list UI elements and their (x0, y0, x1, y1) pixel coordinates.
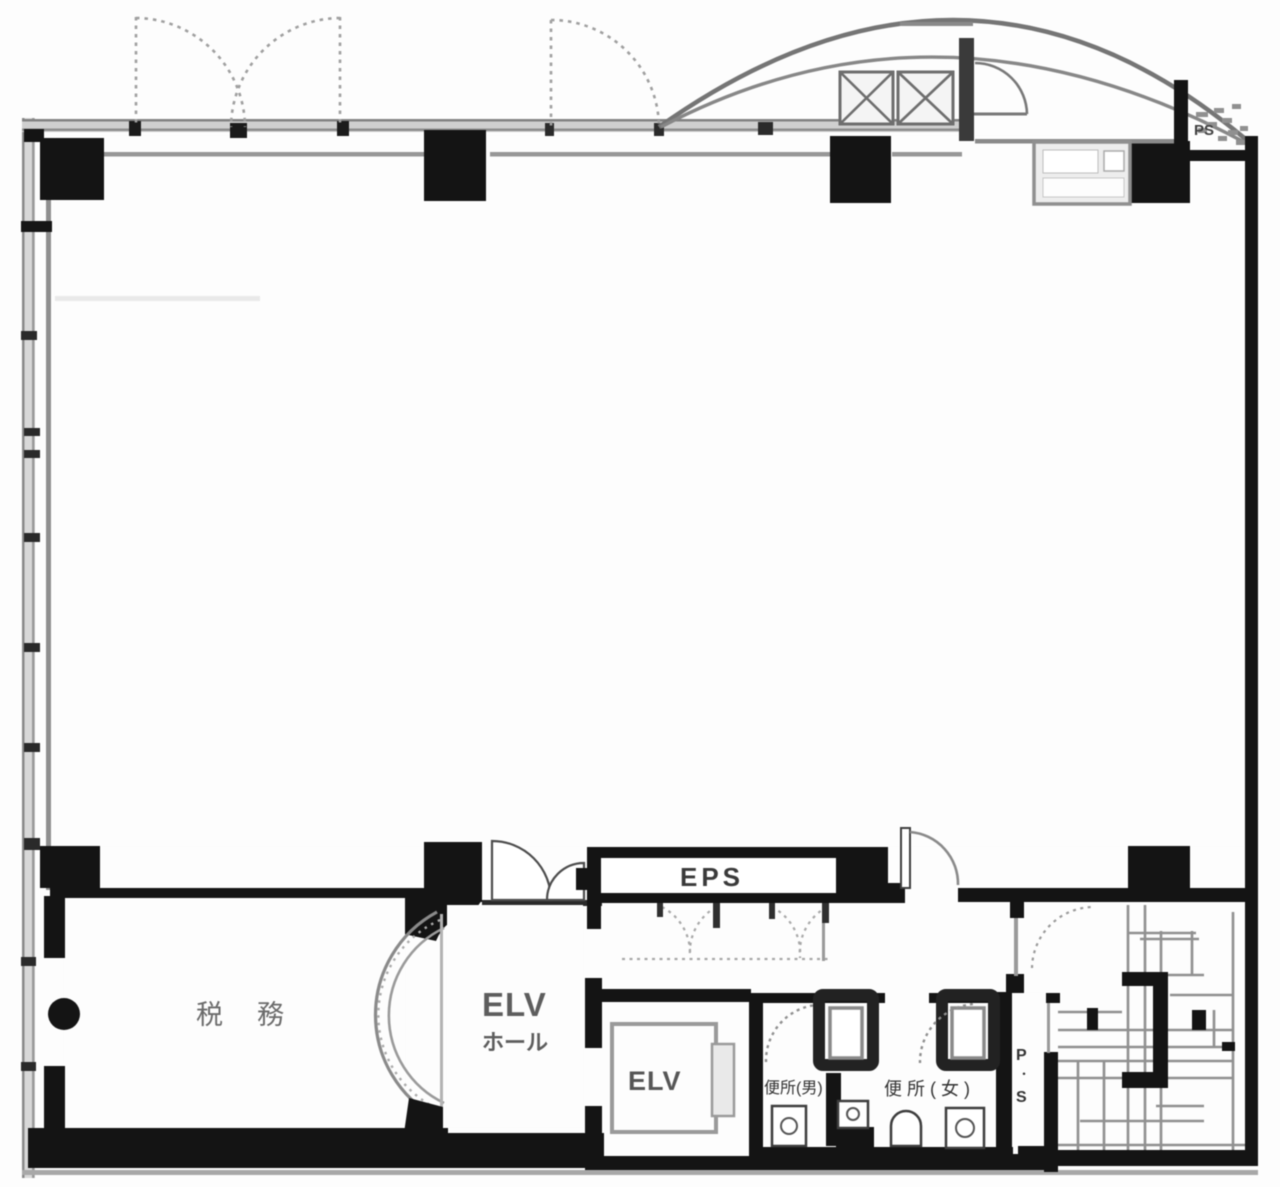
svg-text:PS: PS (1194, 122, 1214, 139)
svg-text:S: S (1016, 1089, 1027, 1106)
svg-text:ホール: ホール (482, 1030, 548, 1055)
svg-text:ELV: ELV (628, 1066, 682, 1096)
svg-text:便所(男): 便所(男) (764, 1079, 823, 1097)
svg-text:ELV: ELV (482, 986, 547, 1023)
svg-text:税務: 税務 (196, 1000, 318, 1030)
svg-text:EPS: EPS (680, 862, 744, 892)
svg-text:・: ・ (1018, 1067, 1030, 1081)
svg-text:便所(女): 便所(女) (884, 1079, 975, 1099)
svg-text:P: P (1016, 1047, 1027, 1064)
